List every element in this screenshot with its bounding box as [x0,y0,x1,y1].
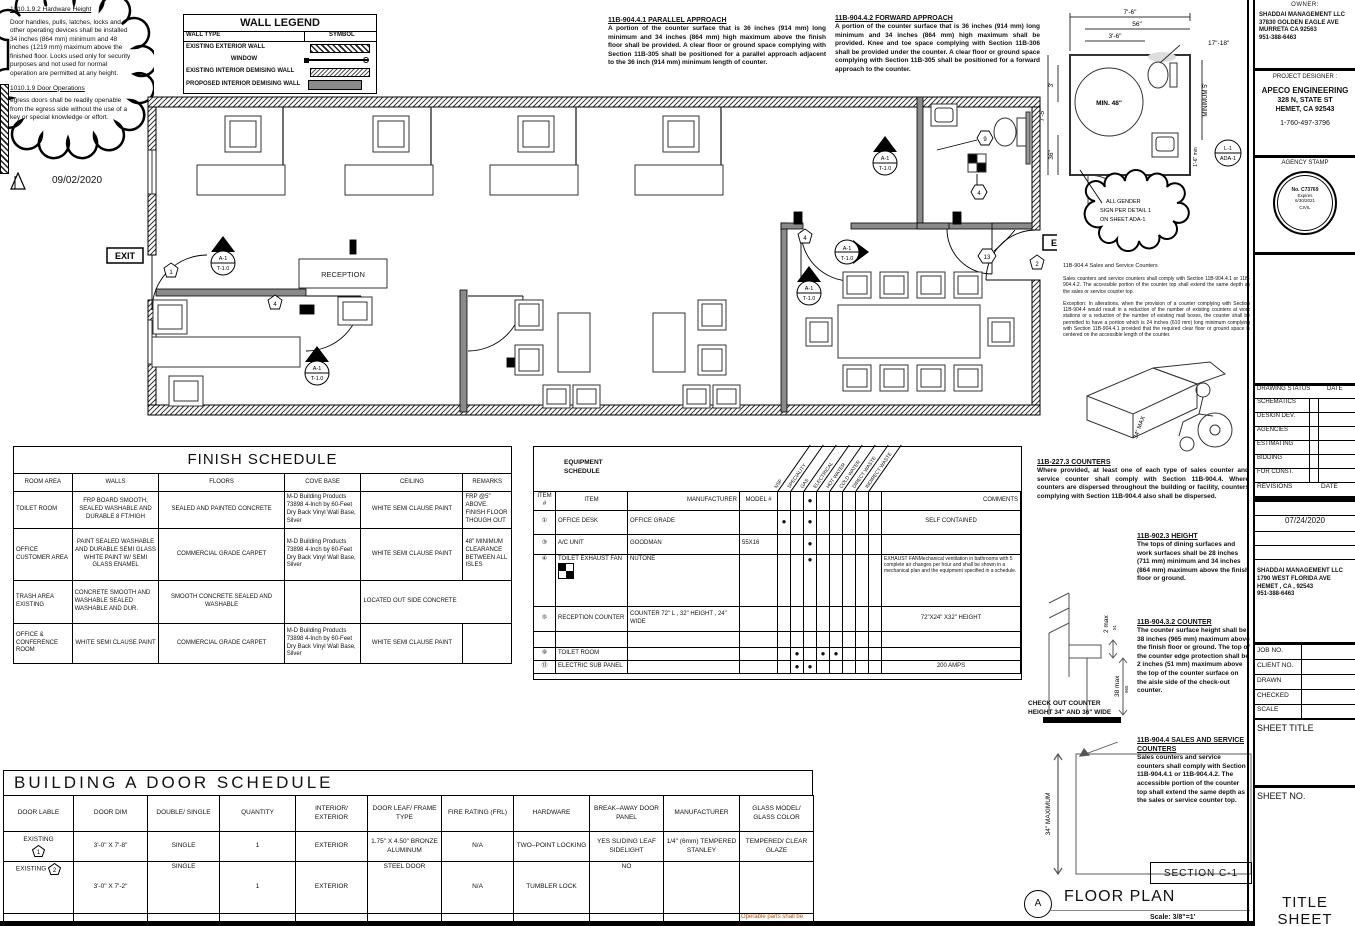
note-body: Door handles, pulls, latches, locks and … [10,19,132,79]
svg-text:56": 56" [1132,21,1142,28]
stamp-date: 6/30/2021 [1275,198,1335,203]
floor-plan: RECEPTION [95,90,1057,428]
fs-row: OFFICE CUSTOMER AREAPAINT SEALED WASHABL… [14,529,512,581]
restroom-detail: 7'-6" 56" 3'-6" 17"-18" MIN. 48" 3' 7'-5… [1040,5,1255,255]
es-row: ⑤RECEPTION COUNTERCOUNTER 72" L , 32" HE… [534,606,1021,631]
ds-header: MANUFACTURER [664,796,740,832]
keynote-tags: 1 4 4 2 9 4 13 [164,131,1044,309]
ds-header: DOOR LABLE [4,796,74,832]
c902-body: The tops of dining surfaces and work sur… [1137,541,1250,584]
svg-text:ON SHEET ADA-1: ON SHEET ADA-1 [1100,217,1145,223]
management-address: SHADDAI MANAGEMENT LLC 1790 WEST FLORIDA… [1255,560,1355,599]
svg-text:A-1: A-1 [881,156,890,162]
info-row-label: JOB NO. [1255,645,1302,659]
es-row: ⑨TOILET ROOM ●●● [534,647,1021,660]
equipment-diagonal-headers: NSF SPECIALITY GAS ELECTRICAL HOT WATER … [534,447,1021,491]
es-row: ④ TOILET EXHAUST FAN NUTONE ● EXHAUST FA… [534,554,1021,606]
section-label: SECTION C-1 [1164,868,1238,879]
finish-schedule-title: FINISH SCHEDULE [187,451,337,468]
checkout-counter-label: CHECK OUT COUNTER HEIGHT 34" AND 36" WID… [1028,700,1118,717]
legend-row-label: EXISTING EXTERIOR WALL [184,44,306,52]
svg-text:51: 51 [1112,624,1117,630]
es-header-row: ITEM # ITEM MANUFACTURER MODEL # ● COMME… [534,492,1021,511]
legend-row-label: EXISTING INTERIOR DEMISING WALL [184,68,306,76]
info-row-label: DRAWN [1255,675,1302,689]
exhaust-fan-icon [558,563,574,579]
designer-addr1: 328 N, STATE ST [1257,96,1353,105]
fs-header: WALLS [72,474,159,492]
svg-text:ADA-1: ADA-1 [1220,156,1236,162]
status-row: BIDDING [1255,455,1310,468]
ada-detail-tag: L-1 ADA-1 [1215,140,1241,166]
status-row: SCHEMATICS [1255,399,1310,412]
sales-counters-note: 11B-904.4 Sales and Service Counters Sal… [1063,263,1250,338]
es-row [534,631,1021,647]
workstations [197,107,723,195]
svg-text:T-1.0: T-1.0 [217,266,230,272]
door-schedule: BUILDING A DOOR SCHEDULE DOOR LABLE DOOR… [3,770,813,926]
fs-row: TRASH AREA EXISTINGCONCRETE SMOOTH AND W… [14,581,512,624]
ds-header: BREAK–AWAY DOOR PANEL [590,796,664,832]
agency-stamp-seal: No. C73769 Expires 6/30/2021 CIVIL [1273,171,1337,235]
interior-demising-symbol [310,68,370,77]
exit-signs: EXIT EXIT [107,235,1057,263]
svg-text:L-1: L-1 [1224,146,1232,152]
reception-label: RECEPTION [321,270,365,279]
es-row: ⑬ELECTRIC SUB PANEL ●● 200 AMPS [534,660,1021,673]
sales-note-p1: Sales counters and service counters shal… [1063,276,1250,295]
info-row-label: CLIENT NO. [1255,660,1302,674]
svg-text:SIGN PER DETAIL 1: SIGN PER DETAIL 1 [1100,208,1151,214]
owner-label: OWNER: [1259,2,1351,10]
c9043-title: 11B-904.3.2 COUNTER [1137,618,1250,627]
exterior-wall-symbol [310,44,370,53]
sales-note-p2: Exception: In alterations, when the prov… [1063,301,1250,339]
sheet-right-border [1247,0,1249,926]
svg-text:ALL GENDER: ALL GENDER [1106,199,1141,205]
stamp-discipline: CIVIL [1275,205,1335,210]
equipment-schedule: EQUIPMENT SCHEDULE NSF SPECIALITY GAS EL… [533,446,1022,680]
parallel-approach-note: 11B-904.4.1 PARALLEL APPROACH A portion … [608,16,826,68]
status-row: FOR CONST. [1255,469,1310,482]
fs-header: CEILING [361,474,463,492]
title-block: OWNER: SHADDAI MANAGEMENT LLC 37830 GOLD… [1253,0,1355,926]
svg-text:7'-6": 7'-6" [1124,9,1138,16]
sheet-title-label: SHEET TITLE [1255,720,1355,788]
svg-text:A-1: A-1 [219,256,228,262]
detail-letter-circle: A [1024,890,1052,918]
proposed-demising-symbol [308,80,362,90]
legend-col-symbol: SYMBOL [305,32,376,41]
designer-label: PROJECT DESIGNER : [1257,74,1353,82]
ds-header: DOUBLE/ SINGLE [148,796,220,832]
svg-text:MIN. 48": MIN. 48" [1096,100,1122,107]
counter-note-9043: 11B-904.3.2 COUNTER The counter surface … [1137,618,1250,696]
status-row: ESTIMATING [1255,441,1310,454]
legend-row-label: WINDOW [184,56,304,64]
door-schedule-title: BUILDING A DOOR SCHEDULE [14,773,334,792]
parallel-body: A portion of the counter surface that is… [608,25,826,68]
fs-header: FLOORS [159,474,284,492]
svg-text:38 max: 38 max [1114,675,1121,697]
status-row: DESIGN DEV. [1255,413,1310,426]
svg-text:1'-6" min: 1'-6" min [1193,147,1199,167]
ds-header: FIRE RATING (FRL) [442,796,514,832]
svg-text:3': 3' [1048,83,1055,88]
floor-plan-titlebar: A FLOOR PLAN Scale: 3/8"=1' [1020,886,1255,922]
ds-row: EXISTING1 3'-0" X 7'-8"SINGLE1EXTERIOR1.… [4,832,814,862]
svg-text:A-1: A-1 [805,286,814,292]
designer-addr2: HEMET, CA 92543 [1257,105,1353,114]
conference-furniture [806,272,1014,391]
svg-text:T-1.0: T-1.0 [879,166,892,172]
svg-text:2 max: 2 max [1103,615,1110,633]
svg-text:T-1.0: T-1.0 [841,256,854,262]
svg-text:A-1: A-1 [843,246,852,252]
drawing-sheet: 1010.1.9.2 Hardware Height Door handles,… [0,0,1355,926]
forward-title: 11B-904.4.2 FORWARD APPROACH [835,14,1040,23]
svg-text:7'-5": 7'-5" [1040,108,1046,122]
counters-note-227: 11B-227.3 COUNTERS Where provided, at le… [1037,458,1249,501]
title-block-revision-date: 07/24/2020 [1255,516,1355,532]
c227-title: 11B-227.3 COUNTERS [1037,458,1249,467]
detail-letter: A [1035,898,1042,909]
c227-body: Where provided, at least one of each typ… [1037,467,1249,501]
svg-text:34" MAX: 34" MAX [1133,416,1147,440]
parallel-title: 11B-904.4.1 PARALLEL APPROACH [608,16,826,25]
designer-phone: 1-760-497-3796 [1257,119,1353,128]
ds-header: DOOR DIM [74,796,148,832]
wall-fragment [0,84,9,174]
c902-title: 11B-902.3 HEIGHT [1137,532,1250,541]
office-furniture [152,300,300,406]
status-header: DRAWING STATUS [1255,386,1327,398]
c9043-body: The counter surface height shall be 38 i… [1137,627,1250,696]
svg-text:A-1: A-1 [313,366,322,372]
finish-schedule: FINISH SCHEDULE ROOM AREA WALLS FLOORS C… [13,446,512,664]
wall-legend: WALL LEGEND WALL TYPE SYMBOL EXISTING EX… [183,14,377,94]
svg-text:EXIT: EXIT [115,251,136,261]
sales-note-title: 11B-904.4 Sales and Service Counters [1063,263,1250,270]
ds-header: GLASS MODEL/ GLASS COLOR [740,796,814,832]
sheet-title-value: TITLE SHEET [1255,894,1355,926]
fs-header: COVE BASE [284,474,361,492]
legend-col-type: WALL TYPE [184,32,305,41]
svg-text:17"-18": 17"-18" [1208,40,1230,47]
status-row: AGENCIES [1255,427,1310,440]
ds-header: HARDWARE [514,796,590,832]
note-title: 1010.1.9.2 Hardware Height [10,6,132,15]
ds-header: QUANTITY [220,796,296,832]
info-row-label: CHECKED [1255,690,1302,704]
designer-name: APECO ENGINEERING [1257,86,1353,96]
svg-text:13: 13 [984,255,991,261]
forward-approach-note: 11B-904.4.2 FORWARD APPROACH A portion o… [835,14,1040,75]
sheet-bottom-border [0,921,1255,926]
sheet-no-label: SHEET NO. [1255,788,1355,804]
all-gender-cloud: ALL GENDER SIGN PER DETAIL 1 ON SHEET AD… [1080,170,1189,251]
es-row: ①OFFICE DESKOFFICE GRADE ●● SELF CONTAIN… [534,510,1021,534]
svg-text:T-1.0: T-1.0 [803,296,816,302]
counter-iso-sketch: 34" MAX [1075,358,1250,456]
ds-header: DOOR LEAF/ FRAME TYPE [368,796,442,832]
svg-text:T-1.0: T-1.0 [311,376,324,382]
section-label-box: SECTION C-1 [1150,862,1252,884]
agency-stamp-label: AGENCY STAMP [1257,160,1353,168]
svg-text:3'-6": 3'-6" [1109,33,1123,40]
waiting-area-furniture [515,300,740,408]
forward-body: A portion of the counter surface that is… [835,23,1040,74]
info-row-label: SCALE [1255,705,1302,718]
revisions-date-label: DATE [1321,483,1355,496]
svg-text:34" MAXIMUM: 34" MAXIMUM [1045,793,1052,836]
revision-delta-icon [10,172,26,190]
svg-text:MINIMUM 5': MINIMUM 5' [1203,83,1209,116]
fs-header: REMARKS [463,474,512,492]
owner-info: SHADDAI MANAGEMENT LLC 37830 GOLDEN EAGL… [1259,12,1351,43]
status-date-header: DATE [1327,386,1355,398]
ds-header: INTERIOR/ EXTERIOR [296,796,368,832]
floor-plan-title: FLOOR PLAN [1064,888,1175,906]
fs-header: ROOM AREA [14,474,73,492]
legend-row-label: PROPOSED INTERIOR DEMISING WALL [184,81,306,89]
svg-text:36": 36" [1048,150,1055,160]
fs-row: TOILET ROOMFRP BOARD SMOOTH, SEALED WASH… [14,492,512,529]
svg-text:965: 965 [1124,685,1129,693]
revisions-label: REVISIONS [1255,483,1321,496]
height-note-902: 11B-902.3 HEIGHT The tops of dining surf… [1137,532,1250,584]
wall-legend-title: WALL LEGEND [184,15,376,32]
ds-row: EXISTING 2 3'-0" X 7'-2"SINGLE1EXTERIORS… [4,862,814,914]
window-symbol [304,56,370,64]
es-row: ③A/C UNITGOODMAN55X16 ● [534,534,1021,554]
fs-row: OFFICE & CONFERENCE ROOMWHITE SEMI CLAUS… [14,624,512,664]
